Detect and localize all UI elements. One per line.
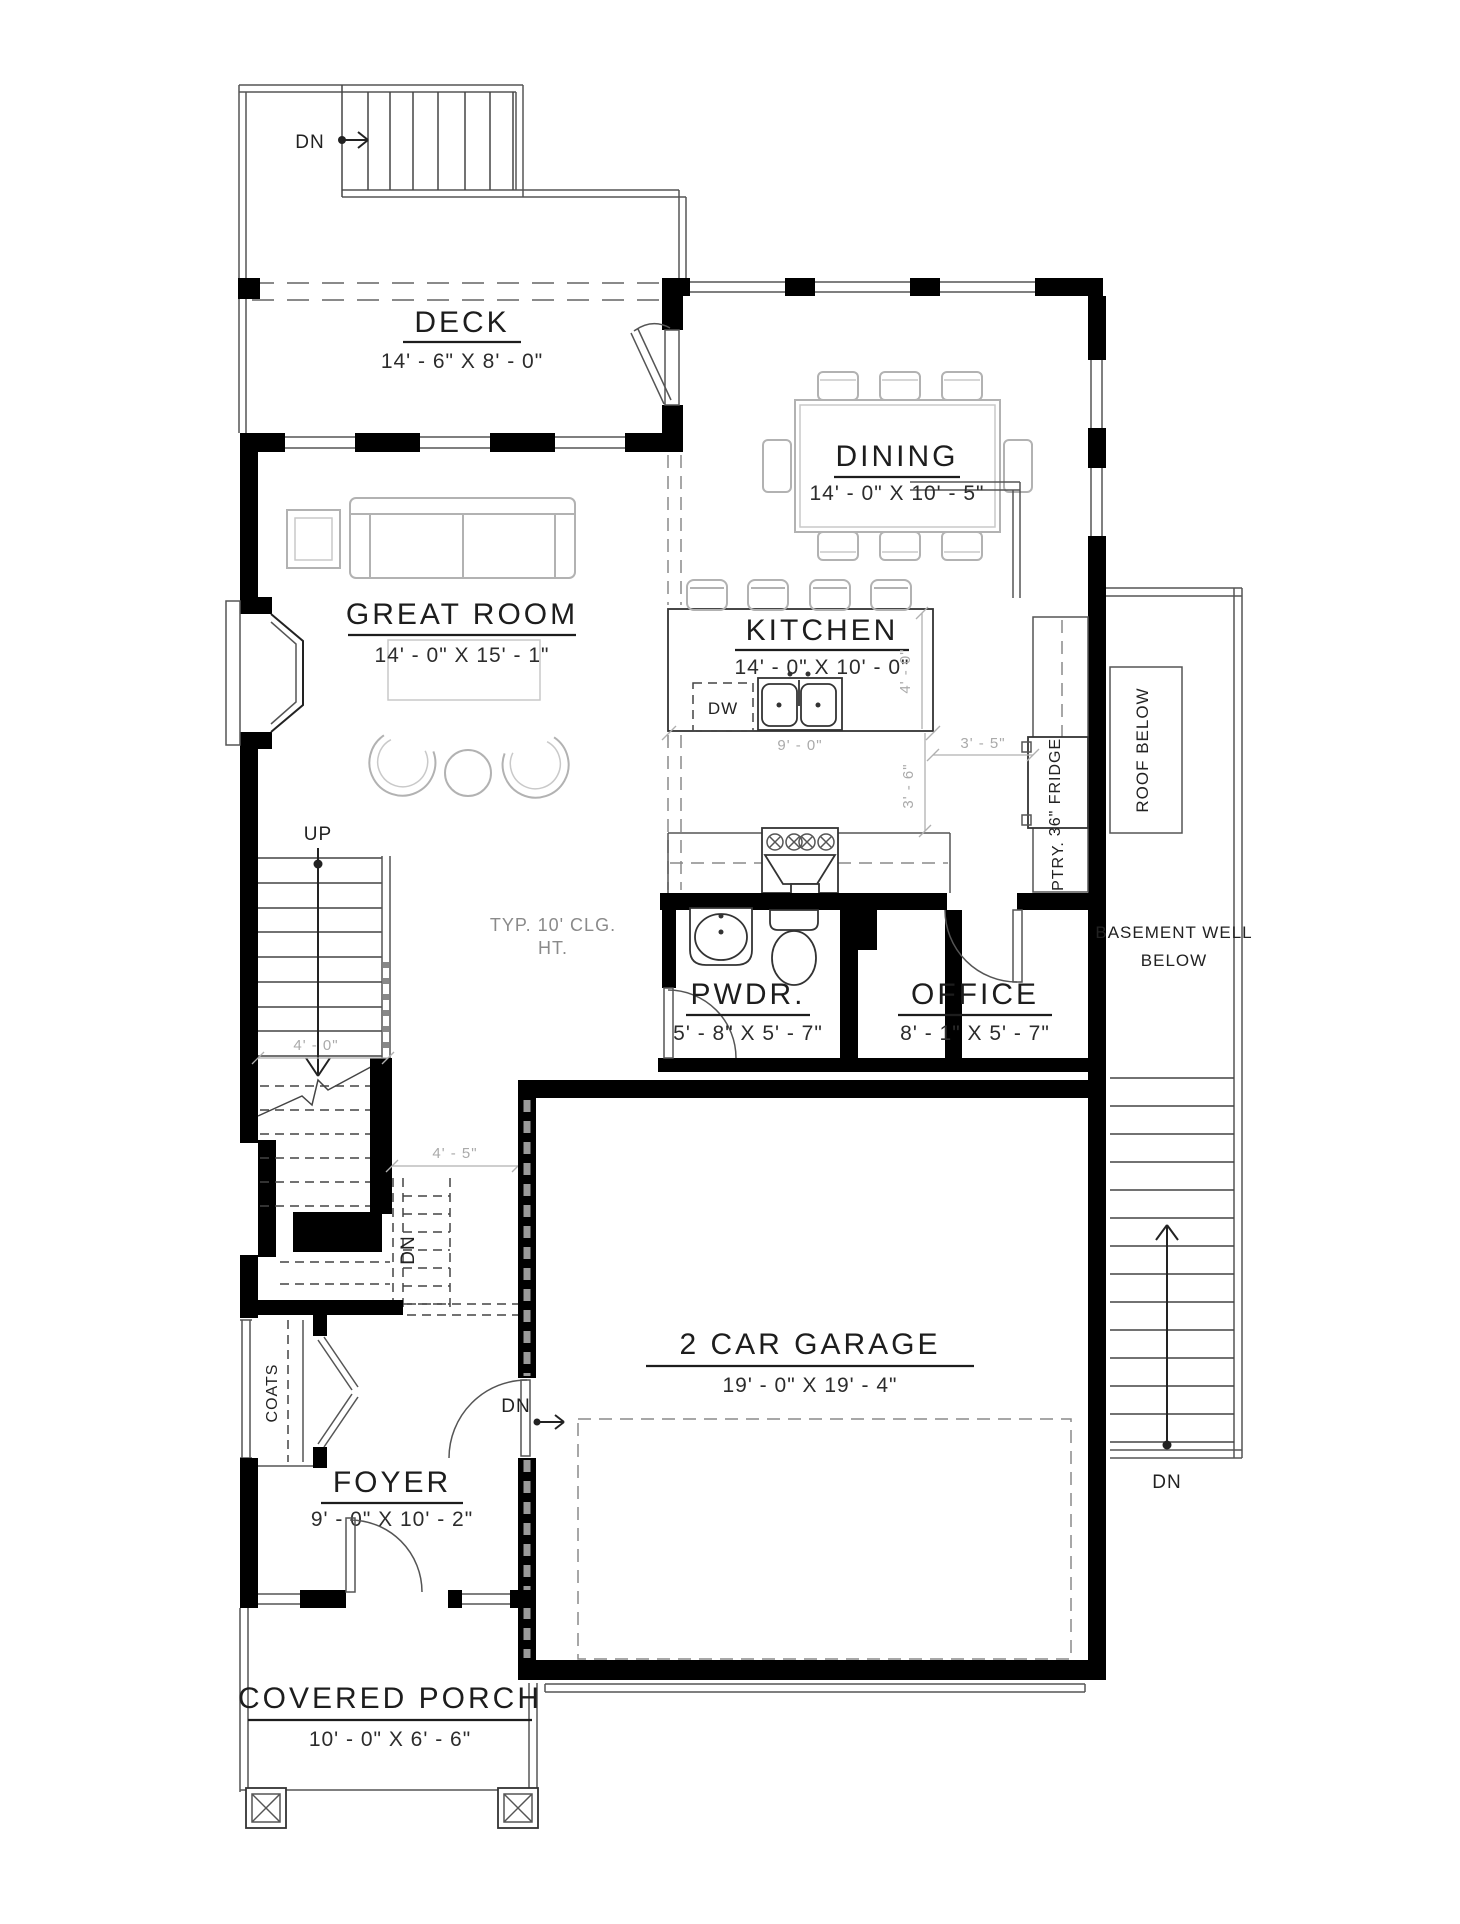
coats-closet: COATS [258,1315,358,1468]
floor-plan-drawing: DN DECK 14' - 6" X 8' - 0" [0,0,1460,1919]
garage-door-overhead-dashed [578,1419,1071,1659]
stairs-up-label: UP [304,824,332,845]
bar-stools [687,580,911,610]
pwdr-dims: 5' - 8" X 5' - 7" [673,1022,823,1045]
kitchen-sink [758,672,842,731]
kitchen-dims: 14' - 0" X 10' - 0" [734,656,909,679]
garage-overhead-door [545,1684,1085,1692]
stair-balusters [383,962,389,1048]
great-room-dims: 14' - 0" X 15' - 1" [374,644,549,667]
basement-well-stairs [1110,1078,1234,1442]
round-table [445,750,491,796]
accent-chair-right [498,735,577,806]
island-depth-dim: 4' - 0" [897,648,914,693]
fridge-label: 36" FRIDGE [1047,738,1064,836]
deck-post [238,278,260,299]
basement-well-dn-label: DN [1152,1472,1181,1493]
garage-dims: 19' - 0" X 19' - 4" [722,1374,897,1397]
accent-chair-left [361,733,440,804]
dining-dims: 14' - 0" X 10' - 5" [809,482,984,505]
roof-below-box: ROOF BELOW [1110,667,1182,833]
dining-north-windows [690,278,1035,296]
covered-porch: COVERED PORCH 10' - 0" X 6' - 6" [238,1608,542,1828]
pwdr-room: PWDR. 5' - 8" X 5' - 7" [664,908,823,1058]
deck-area: DN DECK 14' - 6" X 8' - 0" [238,85,686,433]
porch-column-right [498,1788,538,1828]
island-to-pantry-dim: 3' - 5" [960,735,1005,752]
office-dims: 8' - 1" X 5' - 7" [900,1022,1050,1045]
foyer-west-window [240,1320,252,1458]
basement-well: ROOF BELOW BASEMENT WELL BELOW DN [1095,588,1252,1493]
foyer-label: FOYER [333,1466,451,1499]
kitchen-label: KITCHEN [746,614,899,647]
svg-text:4' - 5": 4' - 5" [432,1145,477,1162]
island-length-dim: 9' - 0" [777,737,822,754]
deck-label: DECK [414,306,509,339]
sofa [350,498,575,578]
coats-label: COATS [264,1364,281,1423]
covered-porch-dims: 10' - 0" X 6' - 6" [309,1728,471,1751]
stair-hidden-treads [260,1086,378,1206]
basement-stairs-dn-label: DN [398,1235,419,1264]
covered-porch-label: COVERED PORCH [238,1682,542,1715]
pantry-label: PTRY. [1050,841,1067,891]
kitchen-area: DW [668,455,1088,896]
garage-entry-dn-label: DN [501,1396,530,1417]
pwdr-sink [690,908,752,965]
roof-below-label: ROOF BELOW [1133,687,1152,812]
floor-plan-page: DN DECK 14' - 6" X 8' - 0" [0,0,1460,1919]
office-label: OFFICE [911,978,1039,1011]
svg-text:4' - 0": 4' - 0" [293,1037,338,1054]
dining-label: DINING [836,440,959,473]
dishwasher-label: DW [708,699,738,718]
basement-well-label-line1: BASEMENT WELL [1095,923,1252,942]
garage-entry-door: DN [449,1378,564,1458]
counter-aisle-dim: 3' - 6" [900,763,917,808]
great-room-label: GREAT ROOM [346,598,578,631]
svg-text:HT.: HT. [538,938,568,958]
pwdr-label: PWDR. [691,978,806,1011]
deck-dn-label: DN [295,132,324,153]
office-room: OFFICE 8' - 1" X 5' - 7" [898,910,1052,1045]
foyer-area: COATS FOYER 9' - 0" X 10' - 2" [240,1300,536,1608]
range [762,828,838,896]
deck-wall-windows [285,433,625,452]
deck-dims: 14' - 6" X 8' - 0" [381,350,543,373]
deck-door [631,324,679,405]
fireplace-bay [226,597,303,749]
garage: DN 2 CAR GARAGE 19' - 0" X 19' - 4" [449,1080,1106,1692]
garage-label: 2 CAR GARAGE [679,1328,940,1361]
bifold-doors [318,1337,358,1447]
toilet [770,910,818,985]
basement-well-arrow [1156,1225,1178,1450]
svg-text:TYP. 10' CLG.: TYP. 10' CLG. [490,915,616,935]
basement-stairs-hidden: DN 4' - 5" [386,1145,524,1312]
ceiling-note: TYP. 10' CLG. HT. [490,915,616,958]
basement-well-label-line2: BELOW [1141,951,1207,970]
hall-width-dim: 4' - 5" [386,1145,524,1172]
porch-column-left [246,1788,286,1828]
foyer-dims: 9' - 0" X 10' - 2" [311,1508,473,1531]
foyer-south-wall [240,1590,536,1608]
